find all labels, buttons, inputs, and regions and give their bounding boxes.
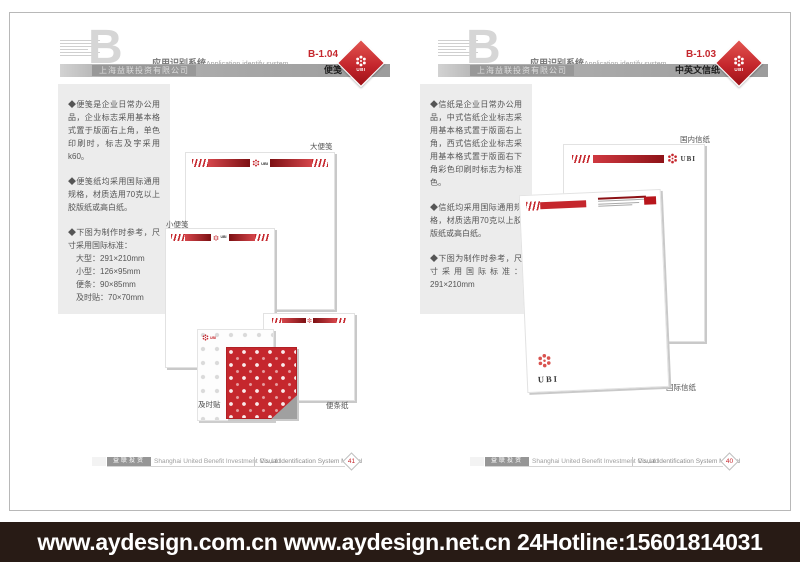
gradient-segment	[593, 155, 664, 163]
logo-text: UBI	[220, 235, 226, 240]
ubi-diamond-inner: UBI	[723, 47, 755, 79]
gradient-segment	[270, 159, 312, 167]
red-corner-block	[644, 196, 656, 205]
page-title: 中英文信纸	[675, 65, 720, 76]
ubi-diamond-logo: UBI	[715, 39, 763, 87]
gradient-segment	[282, 318, 306, 323]
label-large-memo: 大便笺	[310, 141, 333, 152]
letterhead-band: UBI	[572, 153, 696, 164]
stripe-segment	[526, 201, 540, 211]
flower-icon	[733, 55, 745, 67]
company-name: 上海益联投资有限公司	[470, 65, 574, 76]
page-number: 40	[724, 456, 735, 467]
size-spec: 便条：90×85mm	[68, 278, 160, 291]
flower-icon	[252, 159, 260, 167]
logo-text: UBI	[681, 155, 696, 163]
flower-icon	[307, 318, 312, 323]
address-lines	[598, 196, 646, 209]
label-international-letterhead: 国际信纸	[666, 382, 696, 393]
stripe-segment	[312, 159, 328, 167]
page-number-diamond: 40	[720, 452, 738, 470]
flower-icon	[667, 153, 678, 164]
stripe-segment	[572, 155, 590, 163]
footer-light-block	[92, 457, 106, 466]
page-code: B-1.03	[644, 49, 716, 60]
logo-text: UBI	[210, 336, 216, 340]
gradient-segment	[208, 159, 250, 167]
footer-divider	[254, 457, 255, 466]
band-logo-chip: UBI	[250, 158, 270, 169]
size-spec: 及时贴：70×70mm	[68, 291, 160, 304]
ubi-diamond-inner: UBI	[345, 47, 377, 79]
size-spec: 小型：126×95mm	[68, 265, 160, 278]
panel-paragraph: ◆便笺是企业日常办公用品，企业标志采用基本格式置于版面右上角，单色印刷时，标志及…	[68, 98, 160, 163]
stripe-segment	[192, 159, 208, 167]
band-logo-chip	[306, 317, 313, 325]
footer-light-block	[470, 457, 484, 466]
description-panel: ◆便笺是企业日常办公用品，企业标志采用基本格式置于版面右上角，单色印刷时，标志及…	[58, 84, 170, 314]
gradient-segment	[229, 234, 255, 241]
page-number-diamond: 41	[342, 452, 360, 470]
footer-rule	[485, 466, 723, 467]
logo-text: UBI	[356, 67, 365, 72]
footer-company-block: 益联投资	[107, 457, 151, 466]
panel-paragraph: ◆下图为制作时参考，尺寸采用国际标准：	[68, 226, 160, 252]
memo-band	[272, 318, 346, 323]
logo-text: UBI	[538, 374, 560, 385]
pad-logo: UBI	[202, 334, 216, 341]
sticky-note-red	[226, 347, 297, 419]
stripe-segment	[171, 234, 185, 241]
footer-divider	[632, 457, 633, 466]
manual-page-letterhead: B 应用识别系统Application identify system B-1.…	[408, 0, 768, 520]
size-spec: 大型：291×210mm	[68, 252, 160, 265]
description-panel: ◆信纸是企业日常办公用品，中式信纸企业标志采用基本格式置于版面右上角，西式信纸企…	[420, 84, 532, 314]
gradient-segment	[185, 234, 211, 241]
label-sticky: 及时贴	[198, 399, 221, 410]
panel-paragraph: ◆信纸是企业日常办公用品，中式信纸企业标志采用基本格式置于版面右上角，西式信纸企…	[430, 98, 522, 189]
letterhead-footer-logo: UBI	[537, 353, 559, 385]
logo-text: UBI	[261, 161, 268, 166]
flower-icon	[355, 55, 367, 67]
company-name: 上海益联投资有限公司	[92, 65, 196, 76]
stripe-segment	[336, 318, 346, 323]
label-note-paper: 便条纸	[326, 400, 349, 411]
letterhead-band	[526, 199, 586, 211]
stripe-segment	[255, 234, 269, 241]
panel-paragraph: ◆下图为制作时参考，尺寸采用国际标准：291×210mm	[430, 252, 522, 291]
memo-band: UBI	[192, 159, 328, 167]
gradient-segment	[313, 318, 337, 323]
international-letterhead-sheet: UBI	[519, 189, 670, 393]
manual-page-memo: B 应用识别系统Application identify system B-1.…	[30, 0, 390, 520]
panel-paragraph: ◆信纸均采用国际通用规格，材质选用70克以上胶版纸或高白纸。	[430, 201, 522, 240]
logo-text: UBI	[734, 67, 743, 72]
contact-banner: www.aydesign.com.cn www.aydesign.net.cn …	[0, 522, 800, 562]
panel-paragraph: ◆便笺纸均采用国际通用规格，材质选用70克以上胶版纸或高白纸。	[68, 175, 160, 214]
page-code: B-1.04	[266, 49, 338, 60]
footer-rule	[107, 466, 345, 467]
ubi-diamond-logo: UBI	[337, 39, 385, 87]
red-band	[540, 200, 586, 209]
flower-icon	[202, 334, 209, 341]
page-title: 便笺	[324, 65, 342, 76]
page-number: 41	[346, 456, 357, 467]
folded-corner	[271, 395, 297, 419]
memo-band: UBI	[171, 234, 269, 241]
band-logo-chip: UBI	[211, 233, 228, 242]
flower-icon	[213, 235, 219, 241]
stripe-segment	[272, 318, 282, 323]
flower-icon	[537, 353, 553, 369]
footer-company-block: 益联投资	[485, 457, 529, 466]
